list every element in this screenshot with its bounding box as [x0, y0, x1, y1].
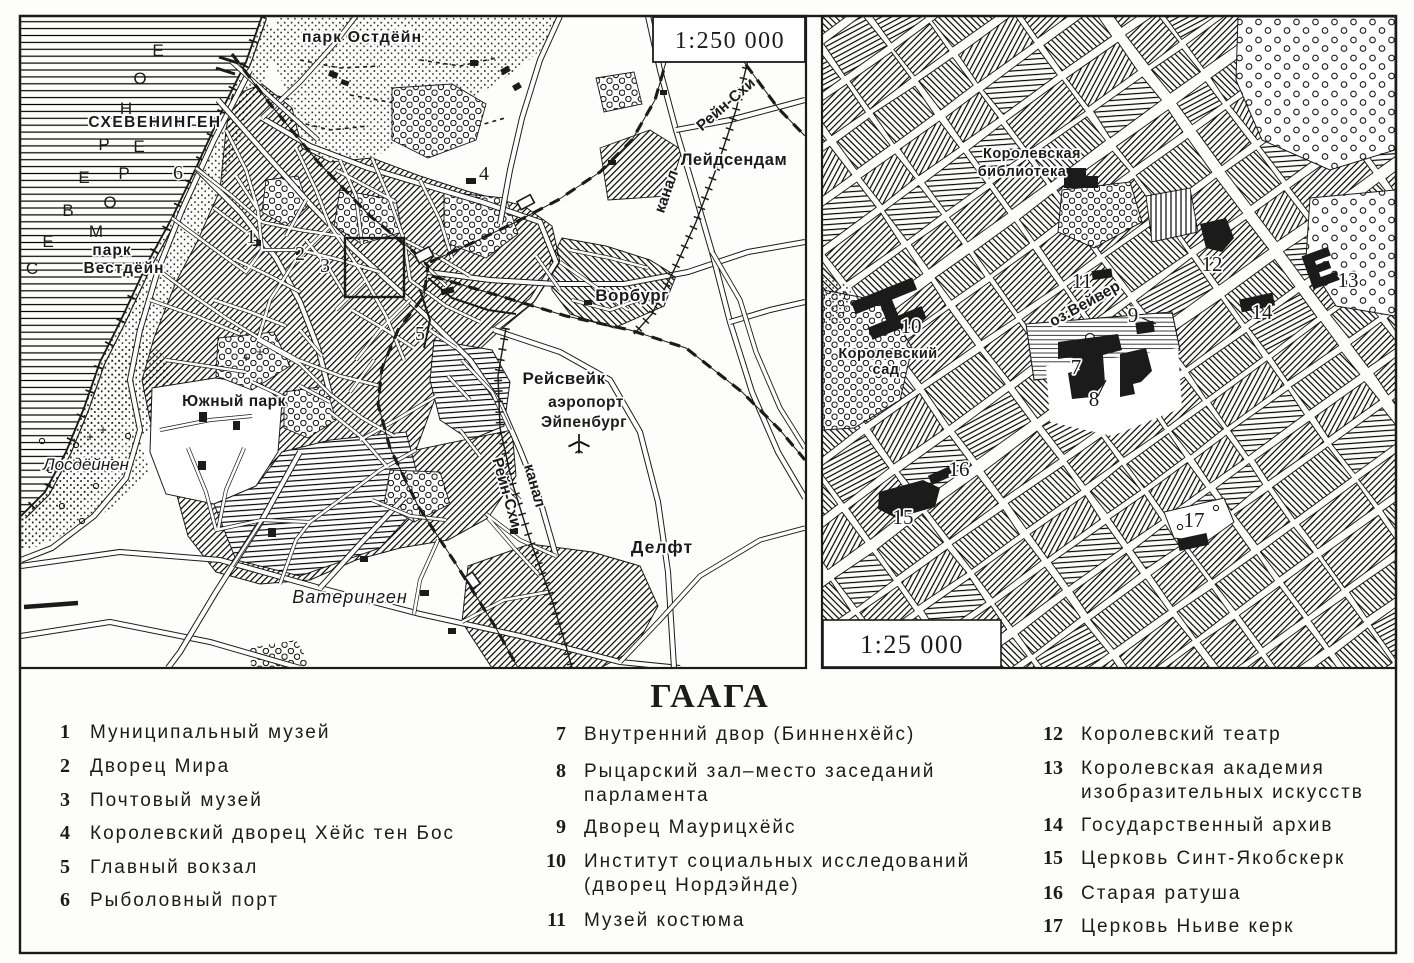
svg-text:5: 5: [60, 856, 70, 878]
svg-text:Государственный архив: Государственный архив: [1081, 815, 1333, 836]
svg-text:Рыболовный порт: Рыболовный порт: [90, 890, 279, 911]
svg-text:Дворец Маурицхёйс: Дворец Маурицхёйс: [584, 817, 797, 838]
svg-text:17: 17: [1184, 508, 1205, 532]
svg-text:12: 12: [1043, 723, 1063, 745]
svg-text:15: 15: [893, 505, 914, 529]
svg-text:+: +: [242, 350, 250, 365]
svg-text:О: О: [133, 69, 146, 88]
svg-text:1:250 000: 1:250 000: [675, 28, 785, 54]
svg-text:Королевская академия: Королевская академия: [1081, 758, 1325, 779]
svg-text:8: 8: [1089, 387, 1100, 411]
svg-text:+: +: [256, 344, 264, 359]
svg-text:8: 8: [556, 760, 566, 782]
svg-text:Р: Р: [98, 135, 109, 154]
svg-text:7: 7: [556, 723, 566, 745]
svg-text:Муниципальный музей: Муниципальный музей: [90, 722, 330, 743]
svg-text:13: 13: [1043, 757, 1063, 779]
svg-text:14: 14: [1252, 300, 1274, 324]
svg-text:5: 5: [415, 323, 425, 345]
svg-text:Е: Е: [133, 137, 144, 156]
svg-text:10: 10: [546, 850, 566, 872]
svg-text:11: 11: [1072, 269, 1092, 293]
svg-text:6: 6: [60, 889, 70, 911]
svg-text:15: 15: [1043, 847, 1063, 869]
svg-text:7: 7: [1071, 355, 1082, 379]
svg-text:Е: Е: [152, 41, 163, 60]
svg-text:Рейсвейк: Рейсвейк: [523, 369, 606, 388]
svg-text:Главный вокзал: Главный вокзал: [90, 857, 258, 878]
svg-text:Королевский: Королевский: [838, 346, 937, 362]
svg-text:Делфт: Делфт: [631, 537, 693, 557]
svg-text:Внутренний двор (Бинненхёйс): Внутренний двор (Бинненхёйс): [584, 724, 915, 745]
svg-text:Музей костюма: Музей костюма: [584, 910, 745, 931]
svg-text:9: 9: [1128, 303, 1139, 327]
svg-text:1:25 000: 1:25 000: [860, 630, 964, 659]
svg-text:изобразительных искусств: изобразительных искусств: [1081, 782, 1364, 803]
svg-text:Лейдсендам: Лейдсендам: [681, 151, 787, 169]
svg-text:Королевский театр: Королевский театр: [1081, 724, 1282, 745]
svg-text:В: В: [62, 201, 73, 220]
svg-text:парк Остдёйн: парк Остдёйн: [302, 29, 422, 46]
svg-text:парк: парк: [92, 242, 131, 259]
svg-text:парламента: парламента: [584, 785, 710, 806]
svg-text:Р: Р: [118, 164, 129, 183]
svg-text:12: 12: [1202, 252, 1223, 276]
svg-text:Старая ратуша: Старая ратуша: [1081, 883, 1241, 904]
svg-text:Е: Е: [42, 232, 53, 251]
svg-text:+: +: [86, 429, 94, 444]
svg-text:Королевский дворец Хёйс тен Б: Королевский дворец Хёйс тен Бос: [90, 823, 455, 844]
svg-text:Дворец Мира: Дворец Мира: [90, 756, 230, 777]
svg-text:Церковь Ньиве керк: Церковь Ньиве керк: [1081, 916, 1295, 937]
svg-text:4: 4: [60, 822, 70, 844]
svg-text:11: 11: [547, 909, 566, 931]
svg-text:Вестдёйн: Вестдёйн: [84, 260, 165, 277]
svg-text:16: 16: [1043, 882, 1063, 904]
svg-text:Лосдёйнен: Лосдёйнен: [42, 455, 130, 474]
svg-text:17: 17: [1043, 915, 1063, 937]
svg-text:сад: сад: [872, 362, 899, 378]
svg-text:Е: Е: [78, 168, 89, 187]
svg-text:ГААГА: ГААГА: [650, 678, 770, 715]
svg-text:9: 9: [556, 816, 566, 838]
svg-text:Королевская: Королевская: [983, 146, 1081, 162]
svg-text:О: О: [103, 193, 116, 212]
svg-text:3: 3: [60, 789, 70, 811]
svg-text:Южный парк: Южный парк: [182, 393, 286, 410]
svg-text:3: 3: [320, 255, 330, 277]
svg-text:Институт социальных исследован: Институт социальных исследований: [584, 851, 970, 872]
svg-text:16: 16: [949, 457, 970, 481]
svg-text:4: 4: [479, 163, 489, 185]
svg-text:(дворец Нордэйнде): (дворец Нордэйнде): [584, 875, 800, 896]
svg-text:10: 10: [901, 314, 922, 338]
svg-text:Почтовый музей: Почтовый музей: [90, 790, 263, 811]
svg-text:2: 2: [295, 243, 305, 265]
svg-text:1: 1: [246, 226, 256, 248]
svg-text:СХЕВЕНИНГЕН: СХЕВЕНИНГЕН: [88, 114, 221, 131]
svg-text:аэропорт: аэропорт: [548, 394, 624, 411]
svg-text:С: С: [26, 259, 38, 278]
svg-text:М: М: [89, 222, 103, 241]
svg-text:библиотека: библиотека: [978, 164, 1067, 180]
svg-text:1: 1: [60, 721, 70, 743]
svg-text:2: 2: [60, 755, 70, 777]
svg-text:6: 6: [173, 162, 183, 184]
svg-text:Рыцарский зал–место заседаний: Рыцарский зал–место заседаний: [584, 761, 935, 782]
svg-text:13: 13: [1338, 268, 1359, 292]
svg-text:Ватеринген: Ватеринген: [292, 587, 408, 607]
svg-text:+: +: [99, 422, 107, 437]
svg-text:14: 14: [1043, 814, 1063, 836]
svg-text:Ворбург: Ворбург: [595, 286, 669, 305]
svg-text:Церковь Синт-Якобскерк: Церковь Синт-Якобскерк: [1081, 848, 1345, 869]
svg-text:Эйпенбург: Эйпенбург: [541, 414, 627, 431]
